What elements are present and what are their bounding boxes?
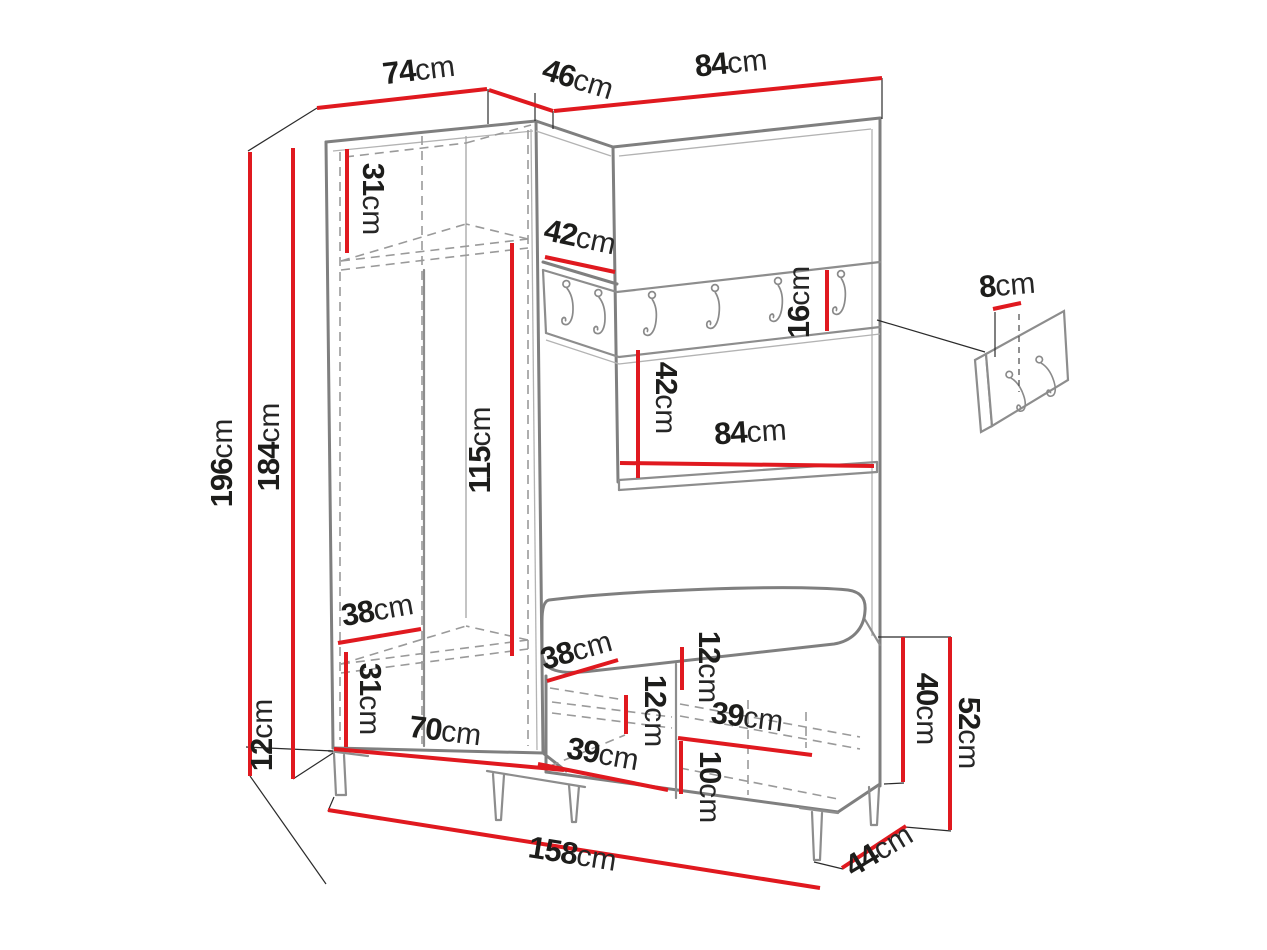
- dimension-label-70cm: 70cm: [407, 709, 483, 753]
- coat-hook-icon: [833, 271, 846, 315]
- dimension-label-16cm: 16cm: [781, 266, 816, 338]
- dimension-label-8cm: 8cm: [978, 265, 1037, 305]
- corner-unit-outline: [536, 121, 618, 482]
- dimension-label-38cm-wardrobe: 38cm: [338, 586, 415, 633]
- dimension-label-84cm-top: 84cm: [693, 41, 769, 83]
- dimension-label-12cm-bench: 12cm: [638, 675, 673, 747]
- coat-hook-icon: [707, 285, 720, 329]
- coat-hook-icon: [558, 280, 575, 325]
- dimension-label-52cm: 52cm: [952, 697, 987, 769]
- dim-line-84-niche: [620, 463, 874, 466]
- small-hook-panel: [877, 311, 1068, 432]
- diagram-canvas: 74cm 46cm 84cm 196cm 184cm 31cm 42cm 16c…: [0, 0, 1267, 950]
- dimension-label-31cm-top: 31cm: [356, 163, 391, 235]
- dimension-label-12cm-cushion: 12cm: [692, 631, 727, 703]
- dim-line-46: [489, 90, 553, 111]
- dimension-label-31cm-bottom: 31cm: [353, 663, 388, 735]
- dimension-label-12cm-legs: 12cm: [244, 699, 279, 771]
- dimension-label-39cm-right: 39cm: [709, 695, 785, 739]
- dimension-label-10cm: 10cm: [693, 751, 728, 823]
- furniture-dimension-diagram: 74cm 46cm 84cm 196cm 184cm 31cm 42cm 16c…: [0, 0, 1267, 950]
- dimension-label-115cm: 115cm: [462, 406, 497, 493]
- coat-hook-icon: [644, 292, 657, 336]
- dim-line-8: [993, 303, 1021, 309]
- dimension-label-40cm: 40cm: [910, 673, 945, 745]
- dimension-label-42cm-niche: 42cm: [649, 362, 684, 434]
- dimension-label-184cm: 184cm: [251, 403, 286, 492]
- dimension-label-44cm: 44cm: [839, 816, 919, 883]
- dimension-label-74cm: 74cm: [381, 48, 457, 92]
- dim-line-74: [317, 89, 487, 108]
- dimension-label-84cm-niche: 84cm: [713, 412, 788, 452]
- dimension-label-42cm-corner: 42cm: [541, 212, 619, 261]
- coat-hook-icon: [590, 289, 607, 334]
- dimension-label-196cm: 196cm: [204, 419, 239, 508]
- dimension-label-158cm: 158cm: [526, 829, 619, 877]
- dimension-label-46cm: 46cm: [538, 52, 618, 107]
